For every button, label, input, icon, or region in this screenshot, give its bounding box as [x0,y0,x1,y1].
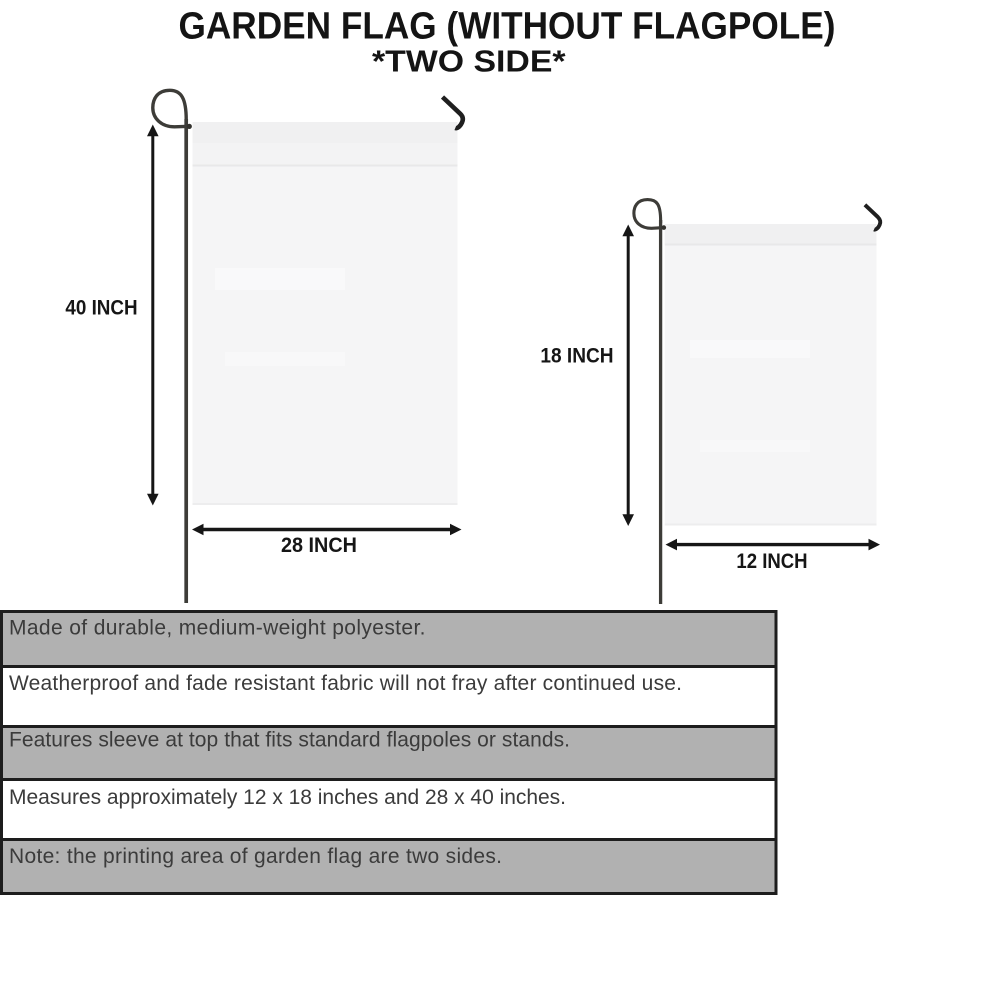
svg-text:Made of durable, medium-weight: Made of durable, medium-weight polyester… [9,617,426,640]
svg-text:Note: the printing area of gar: Note: the printing area of garden flag a… [9,845,502,868]
svg-text:Weatherproof and fade resistan: Weatherproof and fade resistant fabric w… [9,672,682,695]
svg-text:28 INCH: 28 INCH [281,534,357,557]
svg-text:GARDEN FLAG (WITHOUT FLAGPOLE): GARDEN FLAG (WITHOUT FLAGPOLE) [179,5,836,48]
svg-text:12 INCH: 12 INCH [736,550,807,573]
svg-text:40 INCH: 40 INCH [65,297,137,320]
svg-text:Features sleeve at top that fi: Features sleeve at top that fits standar… [9,729,570,752]
svg-text:*TWO SIDE*: *TWO SIDE* [372,45,566,79]
svg-text:18 INCH: 18 INCH [540,344,613,367]
svg-text:Measures approximately 12 x 18: Measures approximately 12 x 18 inches an… [9,786,566,809]
